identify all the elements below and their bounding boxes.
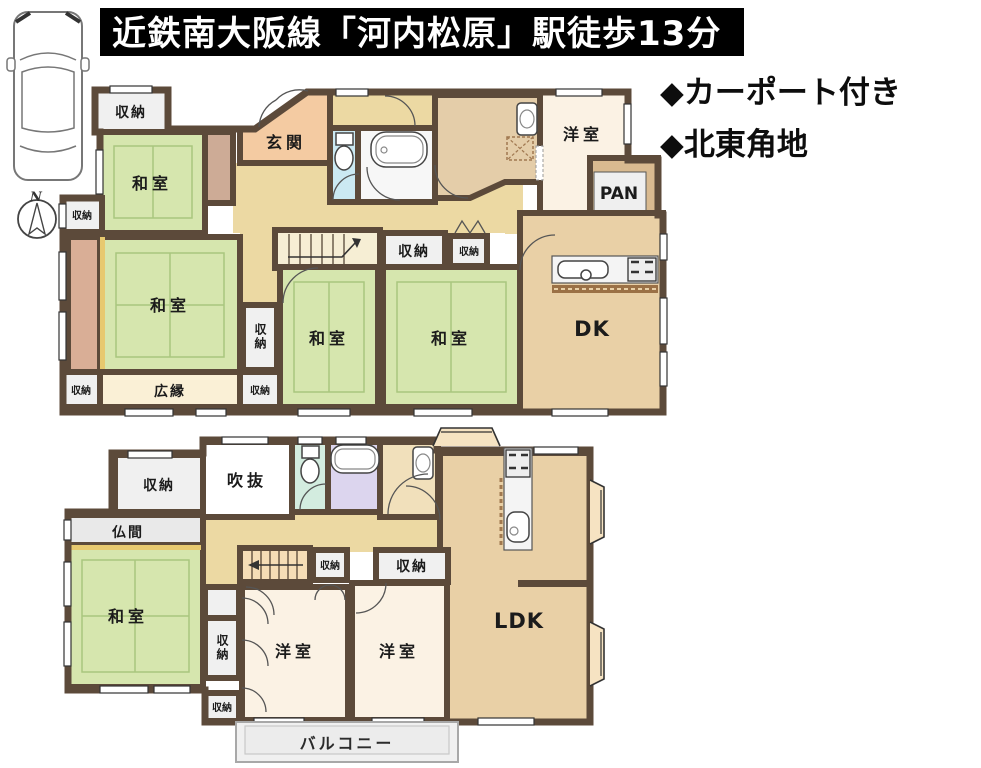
room-label-japanese: 和室 <box>108 607 148 626</box>
floor-plan-flyer: 近鉄南大阪線「河内松原」駅徒歩13分 ◆カーポート付き ◆北東角地 N <box>0 0 981 768</box>
stairs-1f <box>275 230 380 268</box>
room-label-buddhist: 仏間 <box>112 525 144 541</box>
room-label-japanese: 和室 <box>150 296 190 315</box>
kitchen-counter-1f <box>552 256 658 293</box>
room-label-storage: 収納 <box>72 209 92 222</box>
room-label-storage: 収納 <box>212 701 232 714</box>
room-label-storage: 収納 <box>115 104 147 121</box>
room-label-japanese: 和室 <box>132 174 172 193</box>
toilet-icon <box>335 133 353 170</box>
tokonoma-1f <box>205 132 233 203</box>
room-label-storage: 収納 <box>253 323 267 351</box>
washbasin-icon <box>517 103 537 135</box>
feature-list: ◆カーポート付き ◆北東角地 <box>660 75 901 163</box>
room-label-ldk: LDK <box>494 609 544 633</box>
bathtub-icon <box>371 132 427 167</box>
room-label-pantry: PAN <box>600 184 638 204</box>
room-label-storage: 収納 <box>143 477 175 494</box>
room-label-storage: 収納 <box>320 559 340 572</box>
balcony: バルコニー <box>236 722 458 762</box>
room-label-veranda: 広縁 <box>154 383 186 400</box>
room-label-balcony: バルコニー <box>300 734 395 753</box>
room-label-storage: 収納 <box>459 245 479 258</box>
closet-2f <box>205 587 239 618</box>
faucet-icon <box>581 270 591 280</box>
kitchen-sink-icon <box>507 512 529 542</box>
banner: 近鉄南大阪線「河内松原」駅徒歩13分 <box>100 8 744 56</box>
room-label-western: 洋室 <box>563 125 603 144</box>
room-label-storage: 収納 <box>398 243 430 260</box>
floor-plan-2f: バルコニー 収納 吹抜 仏間 和室 収納 収納 洋室 洋室 収納 収納 LDK <box>64 428 604 762</box>
room-label-storage: 収納 <box>215 634 229 662</box>
dining-kitchen-1f <box>520 213 663 412</box>
room-label-storage: 収納 <box>71 384 91 397</box>
room-label-atrium: 吹抜 <box>227 471 267 490</box>
room-label-storage: 収納 <box>250 384 270 397</box>
room-label-japanese: 和室 <box>431 329 471 348</box>
room-label-western: 洋室 <box>275 642 315 661</box>
tatami-border <box>100 237 105 372</box>
room-label-storage: 収納 <box>396 558 428 575</box>
kitchen-counter-2f <box>501 448 532 550</box>
toilet-icon <box>301 446 319 483</box>
tatami-border <box>70 545 201 550</box>
room-label-western: 洋室 <box>379 642 419 661</box>
floor-plan-1f: 収納 和室 玄関 洋室 PAN DK 収納 収納 和室 和室 和室 収納 収納 … <box>59 86 667 416</box>
room-label-japanese: 和室 <box>309 329 349 348</box>
north-label: N <box>29 190 43 205</box>
compass-icon: N <box>18 190 56 238</box>
room-label-dk: DK <box>574 317 610 341</box>
feature-corner-lot: ◆北東角地 <box>660 127 808 163</box>
room-label-entrance: 玄関 <box>266 133 306 152</box>
car-illustration <box>7 12 89 180</box>
interior-wall-stub <box>518 580 590 587</box>
feature-carport: ◆カーポート付き <box>660 75 901 111</box>
banner-title: 近鉄南大阪線「河内松原」駅徒歩13分 <box>112 14 721 54</box>
bathtub-icon <box>331 445 379 473</box>
